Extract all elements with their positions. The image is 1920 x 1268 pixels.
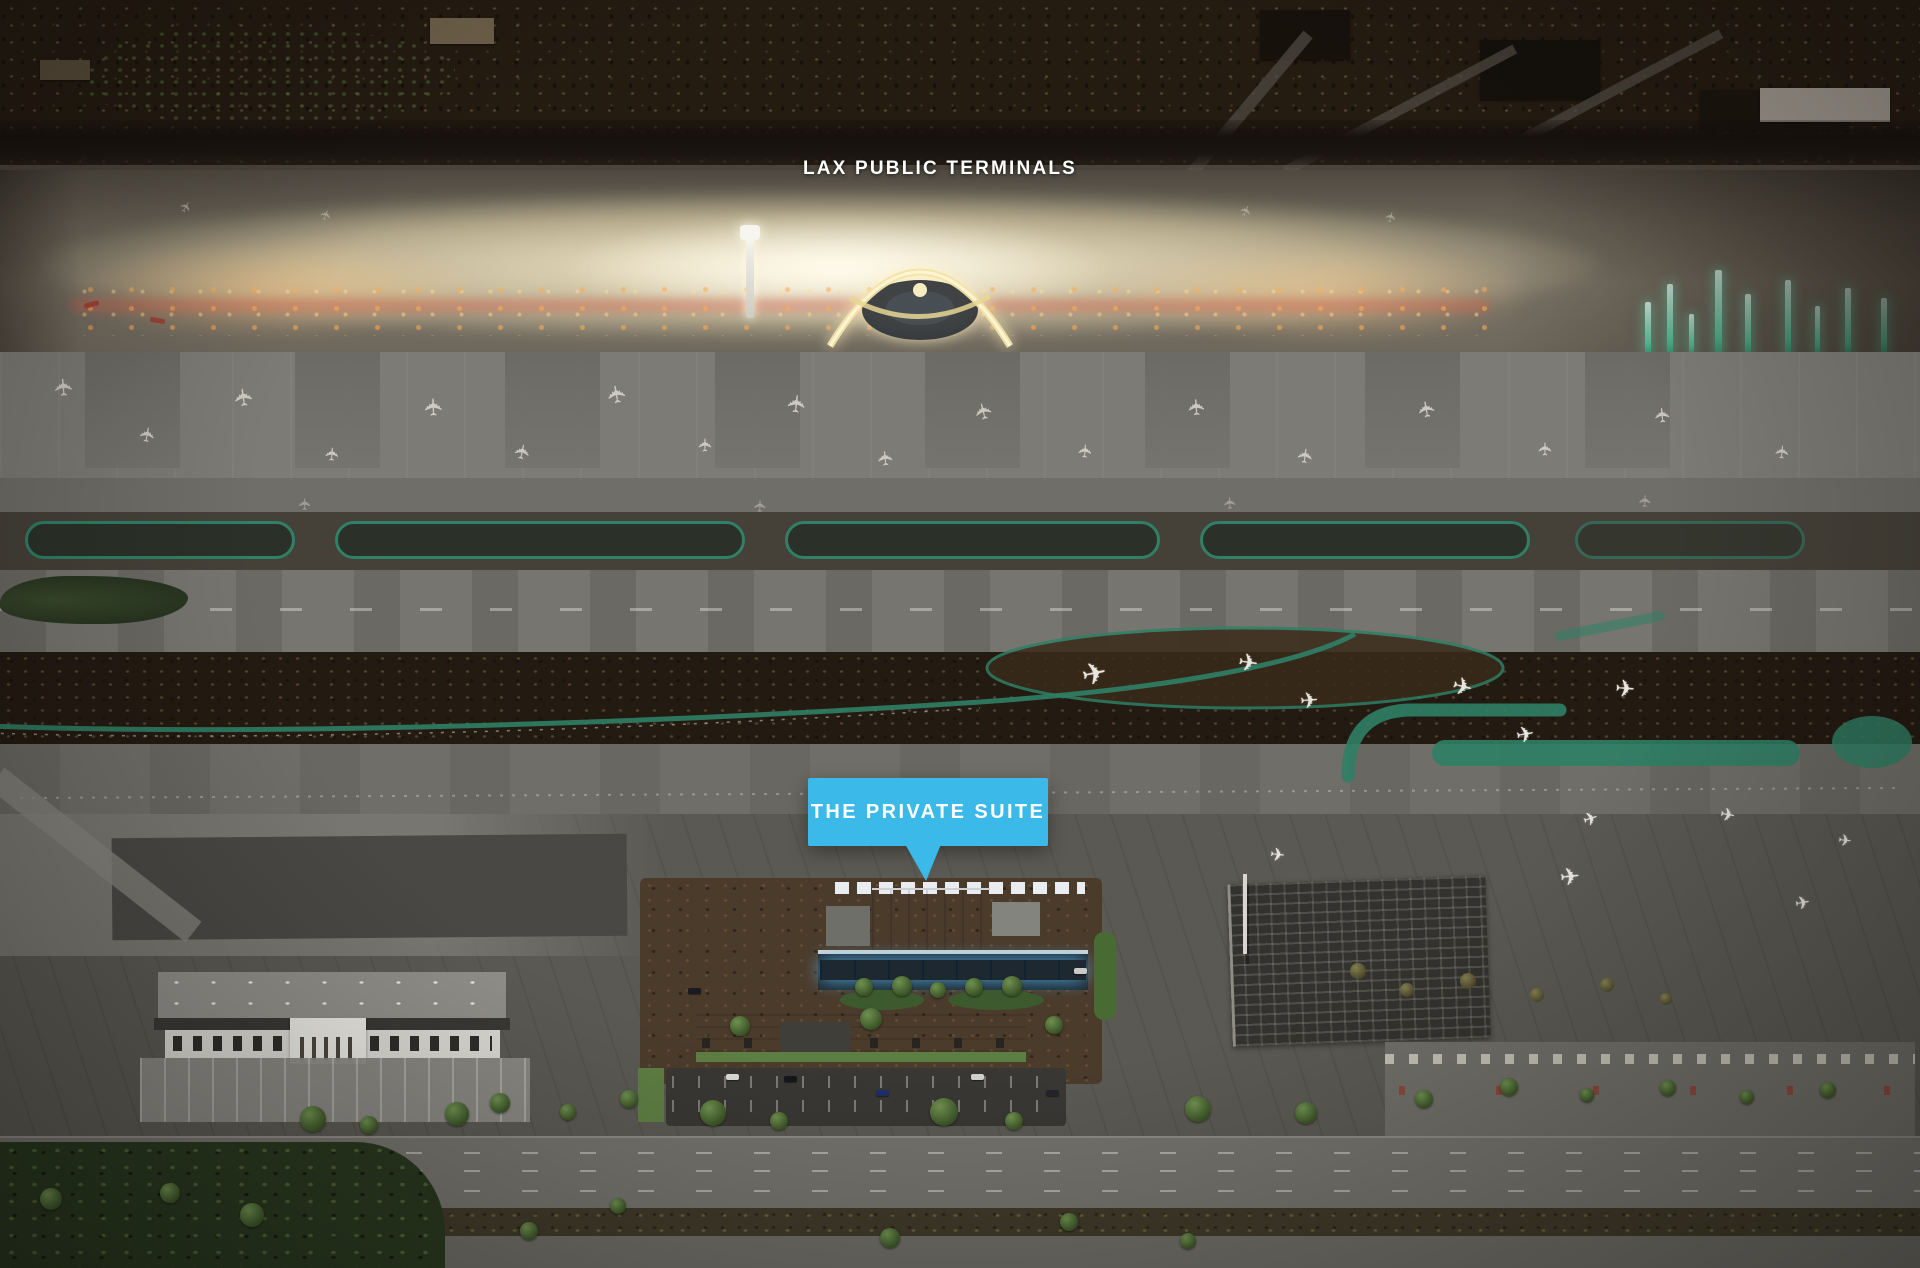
warehouse-roof — [158, 972, 506, 1022]
tree — [360, 1116, 378, 1134]
tree — [1660, 1080, 1676, 1096]
tree — [1002, 976, 1022, 996]
tree — [930, 1098, 958, 1126]
shrub — [1460, 973, 1476, 989]
warehouse-windows — [173, 1036, 293, 1051]
car — [971, 1074, 984, 1080]
construction-structure — [1227, 876, 1490, 1047]
airplane-icon: ✈ — [299, 497, 315, 510]
airplane-icon: ✈ — [1299, 689, 1319, 712]
airplane-icon: ✈ — [1236, 651, 1259, 678]
airplane-icon: ✈ — [1559, 865, 1582, 891]
public-terminals-label: LAX PUBLIC TERMINALS — [690, 158, 1190, 180]
airplane-icon: ✈ — [1773, 444, 1792, 461]
tree — [620, 1090, 638, 1108]
airplane-icon: ✈ — [1076, 443, 1095, 459]
car — [688, 988, 701, 994]
lawn-strip — [696, 1052, 1026, 1062]
tree — [240, 1203, 264, 1227]
shrub — [1350, 963, 1366, 979]
suite-dark-section — [780, 1022, 850, 1052]
tree — [730, 1016, 750, 1036]
tree — [1005, 1112, 1023, 1130]
private-suite-callout-text: THE PRIVATE SUITE — [811, 801, 1046, 824]
tree — [1820, 1082, 1836, 1098]
airplane-icon: ✈ — [52, 376, 78, 398]
airplane-icon: ✈ — [1638, 494, 1654, 508]
shrub — [1600, 978, 1614, 992]
parking-stalls — [672, 1100, 1060, 1112]
airplane-icon: ✈ — [697, 437, 715, 452]
airplane-icon: ✈ — [1614, 677, 1636, 702]
shrub — [1660, 993, 1672, 1005]
tree — [892, 976, 912, 996]
tree — [700, 1100, 726, 1126]
car — [726, 1074, 739, 1080]
tree — [1500, 1078, 1518, 1096]
tree — [1045, 1016, 1063, 1034]
construction-crane — [1243, 874, 1247, 954]
suite-annex — [826, 906, 870, 946]
airplane-icon: ✈ — [137, 425, 160, 445]
tree — [610, 1198, 626, 1214]
tree — [560, 1104, 576, 1120]
shrub — [1400, 983, 1414, 997]
suite-hangar — [872, 888, 990, 950]
tree — [1185, 1096, 1211, 1122]
airplane-icon: ✈ — [323, 446, 342, 462]
hedge-right — [1094, 932, 1116, 1020]
airplane-icon: ✈ — [604, 382, 631, 406]
tree — [880, 1228, 900, 1248]
tree — [855, 978, 873, 996]
private-suite-complex — [630, 872, 1120, 1132]
airplane-icon: ✈ — [1537, 441, 1555, 456]
airplane-icon: ✈ — [1653, 406, 1674, 424]
warehouse-building — [140, 972, 530, 1122]
tree — [445, 1102, 469, 1126]
tree — [490, 1093, 510, 1113]
tree — [520, 1222, 538, 1240]
tree — [40, 1188, 62, 1210]
tree — [1580, 1088, 1594, 1102]
airplane-icon: ✈ — [1794, 893, 1812, 913]
tree — [1295, 1102, 1317, 1124]
tree — [930, 982, 946, 998]
shrub — [1530, 988, 1544, 1002]
airplane-icon: ✈ — [232, 385, 259, 408]
tree — [1415, 1090, 1433, 1108]
tree — [1740, 1090, 1754, 1104]
airplane-icon: ✈ — [785, 393, 811, 416]
airplane-icon: ✈ — [1295, 446, 1317, 465]
airplane-icon: ✈ — [1269, 845, 1286, 864]
tree — [1180, 1233, 1196, 1249]
tree — [965, 978, 983, 996]
warehouse-parking — [140, 1058, 530, 1122]
airplane-icon: ✈ — [1514, 723, 1536, 748]
tree — [1060, 1213, 1078, 1231]
callout-pointer — [905, 844, 941, 881]
airplane-icon: ✈ — [423, 397, 448, 418]
airplane-icon: ✈ — [1223, 496, 1239, 510]
vegetation-bottom-left — [0, 1142, 445, 1268]
suite-glass-facade — [820, 960, 1086, 980]
lax-aerial-photo: ✈ ✈ ✈ ✈ ✈ ✈ ✈ ✈ ✈ ✈ ✈ ✈ ✈ ✈ ✈ ✈ ✈ ✈ ✈ ✈ … — [0, 0, 1920, 1268]
airplane-icon: ✈ — [753, 499, 769, 513]
airplane-icon: ✈ — [1837, 833, 1852, 850]
suite-ground-building-doors — [702, 1038, 1020, 1048]
tree — [300, 1106, 326, 1132]
tree — [860, 1008, 882, 1030]
lawn-strip — [638, 1068, 664, 1122]
airplane-icon: ✈ — [1186, 397, 1209, 417]
airplane-icon: ✈ — [876, 449, 898, 468]
tree — [770, 1112, 788, 1130]
suite-annex — [992, 902, 1040, 936]
car — [784, 1076, 797, 1082]
car — [1046, 1090, 1059, 1096]
airplane-icon: ✈ — [1415, 398, 1440, 420]
tree — [160, 1183, 180, 1203]
warehouse-windows — [370, 1036, 492, 1051]
airplane-icon: ✈ — [1719, 805, 1737, 825]
car — [876, 1090, 889, 1096]
car — [1074, 968, 1087, 974]
private-suite-callout: THE PRIVATE SUITE — [808, 778, 1048, 846]
